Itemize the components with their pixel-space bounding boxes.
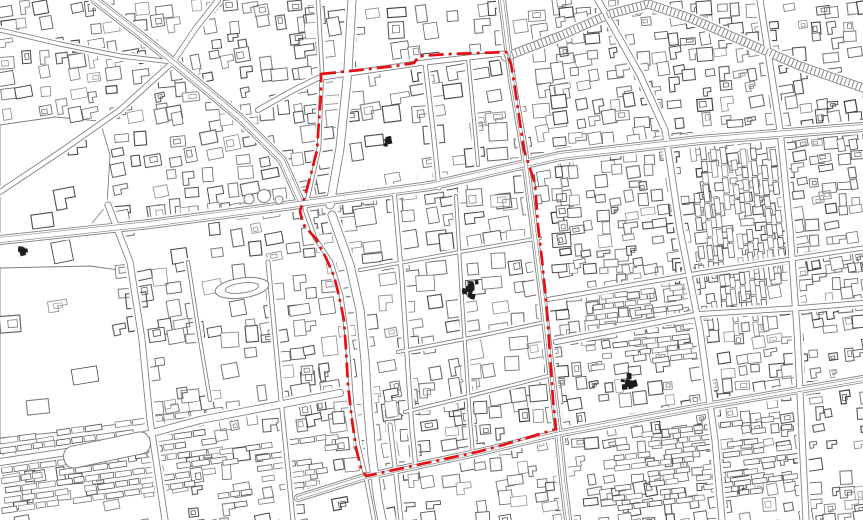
city-map-svg	[0, 0, 863, 520]
map-figure	[0, 0, 863, 520]
